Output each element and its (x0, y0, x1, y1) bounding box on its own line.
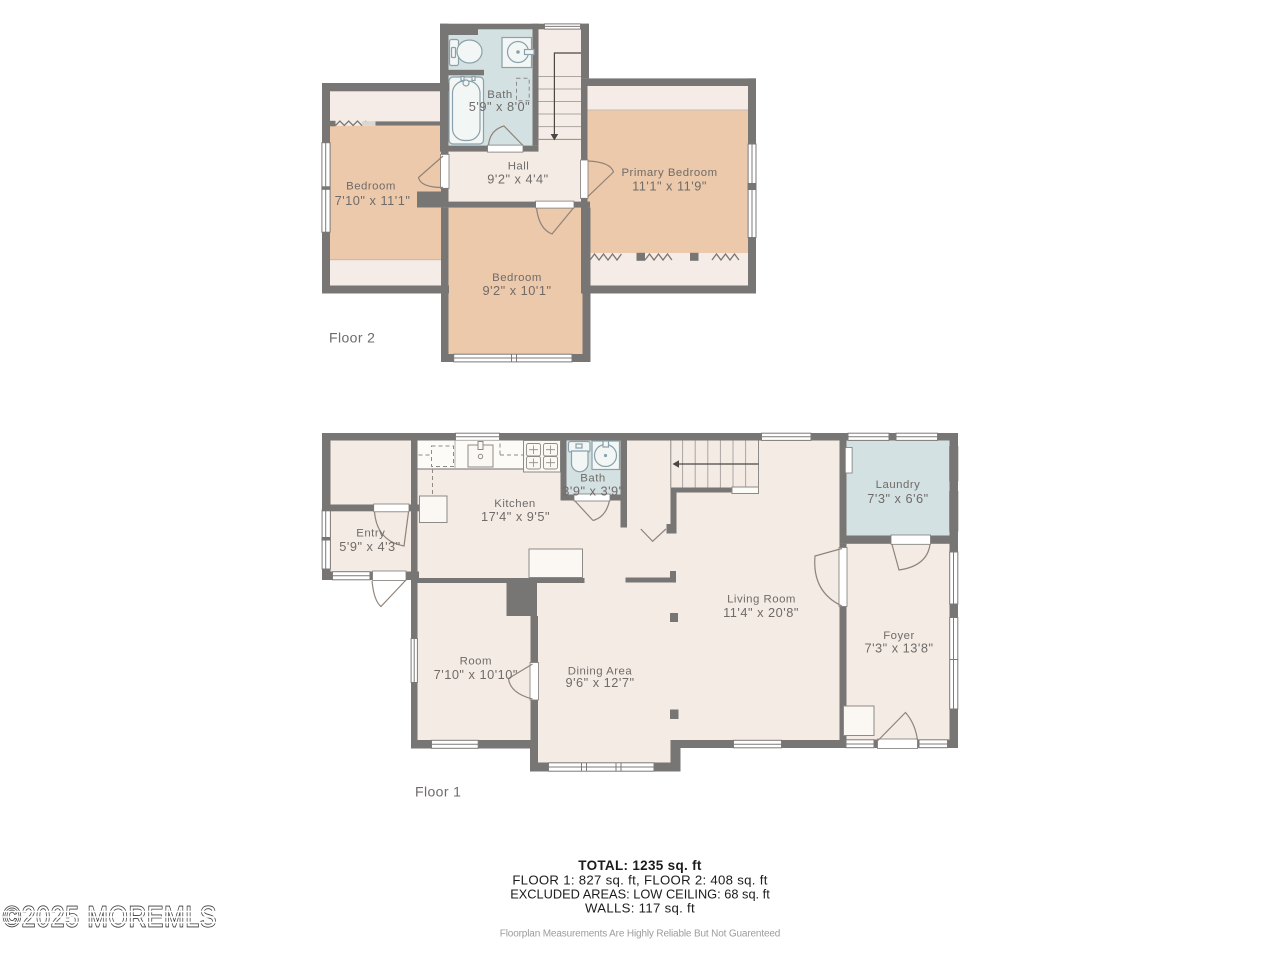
svg-text:Primary Bedroom: Primary Bedroom (621, 167, 717, 179)
svg-text:WALLS: 117 sq. ft: WALLS: 117 sq. ft (585, 900, 695, 915)
svg-text:7'3" x 13'8": 7'3" x 13'8" (864, 641, 933, 656)
svg-text:7'3" x 6'6": 7'3" x 6'6" (867, 491, 928, 506)
svg-text:Bedroom: Bedroom (346, 181, 396, 193)
svg-text:11'4" x 20'8": 11'4" x 20'8" (723, 605, 799, 620)
svg-text:TOTAL: 1235 sq. ft: TOTAL: 1235 sq. ft (578, 858, 702, 873)
svg-text:Floorplan Measurements Are Hig: Floorplan Measurements Are Highly Reliab… (500, 929, 780, 940)
svg-text:7'10" x 10'10": 7'10" x 10'10" (434, 667, 518, 682)
svg-text:Floor 2: Floor 2 (329, 330, 375, 346)
svg-text:17'4" x 9'5": 17'4" x 9'5" (481, 509, 550, 524)
svg-text:Bedroom: Bedroom (492, 272, 542, 284)
svg-text:FLOOR 1: 827 sq. ft, FLOOR 2:: FLOOR 1: 827 sq. ft, FLOOR 2: 408 sq. ft (512, 872, 767, 887)
svg-text:9'2" x 10'1": 9'2" x 10'1" (482, 283, 551, 298)
svg-text:9'6" x 12'7": 9'6" x 12'7" (565, 675, 634, 690)
svg-text:5'9" x 4'3": 5'9" x 4'3" (339, 539, 400, 554)
svg-text:11'1" x 11'9": 11'1" x 11'9" (632, 179, 707, 194)
svg-text:Entry: Entry (356, 528, 385, 540)
svg-text:Floor 1: Floor 1 (415, 784, 461, 800)
svg-text:7'10" x 11'1": 7'10" x 11'1" (335, 193, 411, 208)
svg-text:9'2" x 4'4": 9'2" x 4'4" (487, 172, 548, 187)
svg-text:5'9" x 8'0": 5'9" x 8'0" (469, 99, 530, 114)
svg-text:Laundry: Laundry (876, 479, 921, 491)
svg-text:Room: Room (460, 656, 492, 668)
svg-text:3'9" x 3'9": 3'9" x 3'9" (562, 483, 623, 498)
